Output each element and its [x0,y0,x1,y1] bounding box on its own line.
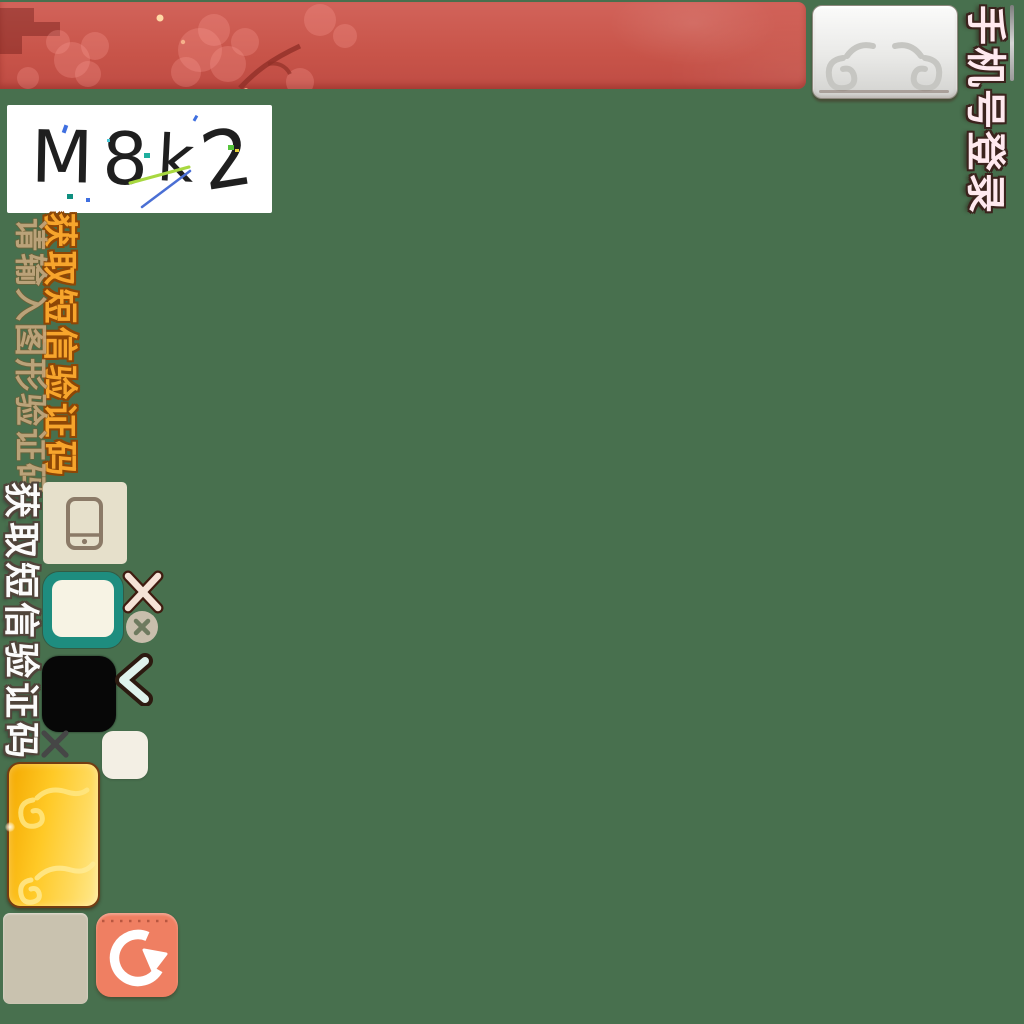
sparkle-decoration [5,822,15,832]
clear-input-button[interactable] [126,611,158,643]
captcha-noise [7,105,272,213]
small-input-box[interactable] [102,731,148,779]
clear-x-icon [126,611,158,643]
page-title: 手机号登录 [956,4,1014,214]
refresh-captcha-button[interactable] [96,913,178,997]
captcha-input-placeholder: 请输入图形验证码 [10,217,50,497]
black-panel [42,656,116,732]
chevron-left-icon[interactable] [112,652,158,706]
refresh-icon [96,913,178,997]
blossom-decoration [0,2,806,89]
close-icon-small[interactable] [40,729,70,759]
get-sms-code-label[interactable]: 获取短信验证码 [0,480,42,760]
agreement-checkbox[interactable] [43,572,123,648]
gold-cloud-decoration [9,764,98,906]
top-banner [0,2,806,89]
checkbox-inner [52,580,114,637]
cloud-decoration [813,6,955,96]
divider-line [1010,5,1014,81]
close-icon[interactable] [121,569,165,615]
captcha-answer-box[interactable] [3,913,88,1004]
phone-number-field[interactable] [43,482,127,564]
phone-icon [43,482,127,564]
silver-plate-button[interactable] [812,5,958,99]
game-login-screen: 手机号登录 M8k2 获取短信验证码 请输入图形验证码 获取短信验证码 [0,0,1024,1024]
captcha-image[interactable]: M8k2 [7,105,272,213]
gold-confirm-button[interactable] [7,762,100,908]
